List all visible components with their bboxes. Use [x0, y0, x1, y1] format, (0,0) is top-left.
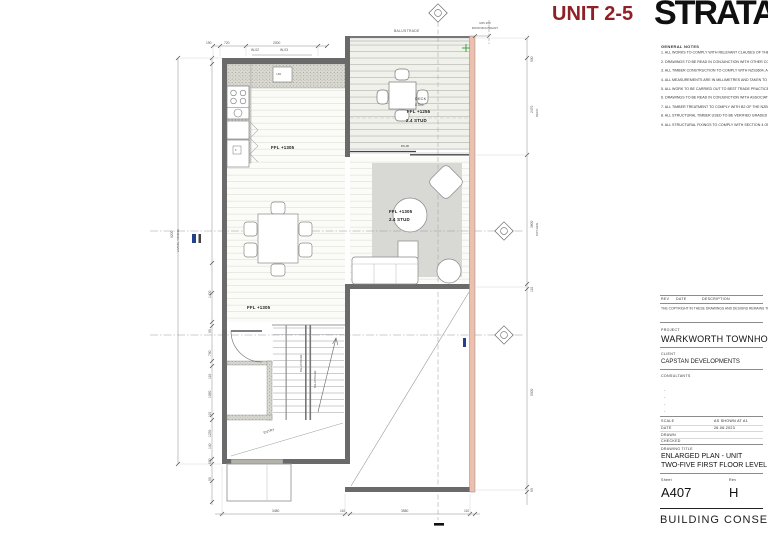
unit-title: UNIT 2-5: [552, 3, 633, 26]
project-name: WARKWORTH TOWNHOUSES: [661, 334, 768, 344]
dim-label: 110: [530, 287, 534, 292]
dim-label: 9200: [170, 231, 174, 238]
dim-label: 720: [224, 41, 230, 45]
divider: [660, 425, 763, 426]
dim-label: 1230: [208, 430, 212, 437]
boundary-note-line2: FROM BOUNDARY: [462, 26, 508, 31]
closet: [227, 331, 272, 420]
date-value: 26.06.2023: [714, 426, 735, 430]
date-label: DATE: [661, 426, 672, 430]
window-tag: W-02: [251, 48, 259, 52]
dim-label: 5300: [530, 389, 534, 396]
copyright-note: THE COPYRIGHT IN THESE DRAWINGS AND DESI…: [661, 307, 762, 311]
dim-label: 90: [530, 488, 534, 492]
party-wall: [470, 36, 476, 492]
dim-label: 90: [208, 477, 212, 481]
dim-label: 110: [208, 412, 212, 417]
dim-label: 890: [208, 458, 212, 464]
sheet-number: A407: [661, 485, 691, 500]
rev-col-header: REV: [661, 297, 669, 301]
general-note: 3. ALL TIMBER CONSTRUCTION TO COMPLY WIT…: [661, 69, 768, 74]
living-ffl-label: FFL +1305: [389, 209, 412, 214]
stair-balustrade-label: BALUSTRADE: [314, 371, 317, 388]
consultant-row: -: [664, 387, 665, 392]
general-note: 9. ALL STRUCTURAL FIXINGS TO COMPLY WITH…: [661, 124, 768, 129]
living-stud-label: 2.4 STUD: [389, 217, 410, 222]
kitchen-ffl-label: FFL +1305: [271, 145, 294, 150]
balustrade-label: BALUSTRADE: [394, 29, 420, 33]
dim-label: 140: [208, 443, 212, 449]
sliding-door: [350, 152, 469, 155]
window-tag: W-03: [280, 48, 288, 52]
general-note: 5. ALL WORK TO BE CARRIED OUT TO BEST TR…: [661, 87, 768, 92]
deck-room-label: DECK: [415, 97, 426, 101]
door-tag: DS-06: [401, 144, 409, 148]
consultant-row: -: [664, 401, 665, 406]
drawing-title-label: DRAWING TITLE: [661, 447, 693, 451]
drawn-label: DRAWN: [661, 433, 676, 437]
client-name: CAPSTAN DEVELOPMENTS: [661, 359, 740, 365]
divider: [660, 473, 763, 474]
dim-label: 1400: [208, 291, 212, 298]
sheet-label: Sheet: [661, 478, 672, 482]
rev-label: Rev: [729, 478, 736, 482]
rev-value: H: [729, 485, 738, 500]
divider: [660, 347, 763, 348]
fridge-label: F: [235, 148, 237, 152]
divider: [660, 295, 763, 296]
void-diagonal: [351, 292, 469, 486]
divider: [660, 303, 763, 304]
dim-label: 90: [208, 329, 212, 333]
building-consent-stamp: BUILDING CONSENT: [660, 514, 768, 526]
divider: [660, 369, 763, 370]
client-label: CLIENT: [661, 352, 676, 356]
divider: [660, 508, 763, 509]
dim-label: 190: [206, 41, 212, 45]
checked-label: CHECKED: [661, 439, 681, 443]
deck-ffl-label: FFL +1255: [407, 109, 430, 114]
dining-ffl-label: FFL +1305: [247, 305, 270, 310]
general-note: 2. DRAWINGS TO BE READ IN CONJUNCTION WI…: [661, 60, 768, 65]
dim-label: 3600: [530, 221, 534, 228]
dim-label: 2470: [530, 106, 534, 113]
drawing-title-line1: ENLARGED PLAN - UNIT: [661, 453, 742, 460]
general-note: 6. DRAWINGS TO BE READ IN CONJUNCTION WI…: [661, 96, 768, 101]
stair-balustrade-label: BALUSTRADE: [300, 355, 303, 372]
hw-label: HW: [277, 72, 282, 76]
dim-label: 110: [340, 509, 345, 513]
boundary-note: MIN 300 FROM BOUNDARY: [462, 21, 508, 30]
consultants-label: CONSULTANTS: [661, 374, 691, 378]
dim-label: 110: [208, 374, 212, 379]
divider: [660, 416, 763, 417]
general-notes: 1. ALL WORKS TO COMPLY WITH RELEVANT CLA…: [661, 51, 768, 133]
general-note: 1. ALL WORKS TO COMPLY WITH RELEVANT CLA…: [661, 51, 768, 56]
description-col-header: DESCRIPTION: [702, 297, 730, 301]
consultant-row: -: [664, 408, 665, 413]
dim-label: 1090: [208, 391, 212, 398]
consultant-row: -: [664, 394, 665, 399]
divider: [660, 322, 763, 323]
deck-stud-label: 2.4 STUD: [406, 118, 427, 123]
floor-plan-linework: [0, 0, 768, 543]
general-note: 4. ALL MEASUREMENTS ARE IN MILLIMETRES A…: [661, 78, 768, 83]
dim-label: 2000: [273, 41, 280, 45]
drawing-sheet: BALUSTRADE MIN 300 FROM BOUNDARY W-02 W-…: [0, 0, 768, 543]
deck-area-label: 8.5m²: [415, 103, 424, 107]
scale-value: AS SHOWN AT A1: [714, 419, 748, 423]
scale-label: SCALE: [661, 419, 674, 423]
dim-room-label: KITCHEN: [535, 223, 539, 236]
dim-label: 790: [208, 350, 212, 356]
date-col-header: DATE: [676, 297, 687, 301]
drawing-title-line2: TWO-FIVE FIRST FLOOR LEVEL: [661, 462, 767, 469]
divider: [660, 444, 763, 445]
strata-logo: STRATA: [654, 0, 768, 33]
dim-label: 900: [530, 56, 534, 62]
dim-label: 110: [464, 509, 469, 513]
general-note: 8. ALL STRUCTURAL TIMBER USED TO BE VERI…: [661, 115, 768, 120]
stairs: [272, 325, 345, 420]
project-label: PROJECT: [661, 328, 680, 332]
general-notes-title: GENERAL NOTES: [661, 44, 699, 49]
dim-label: 3480: [272, 509, 279, 513]
dim-room-label: DECK: [535, 109, 539, 117]
general-note: 7. ALL TIMBER TREATMENT TO COMPLY WITH B…: [661, 105, 768, 110]
dim-label: 3580: [401, 509, 408, 513]
dim-room-label: LIVING / DINING: [176, 229, 180, 252]
